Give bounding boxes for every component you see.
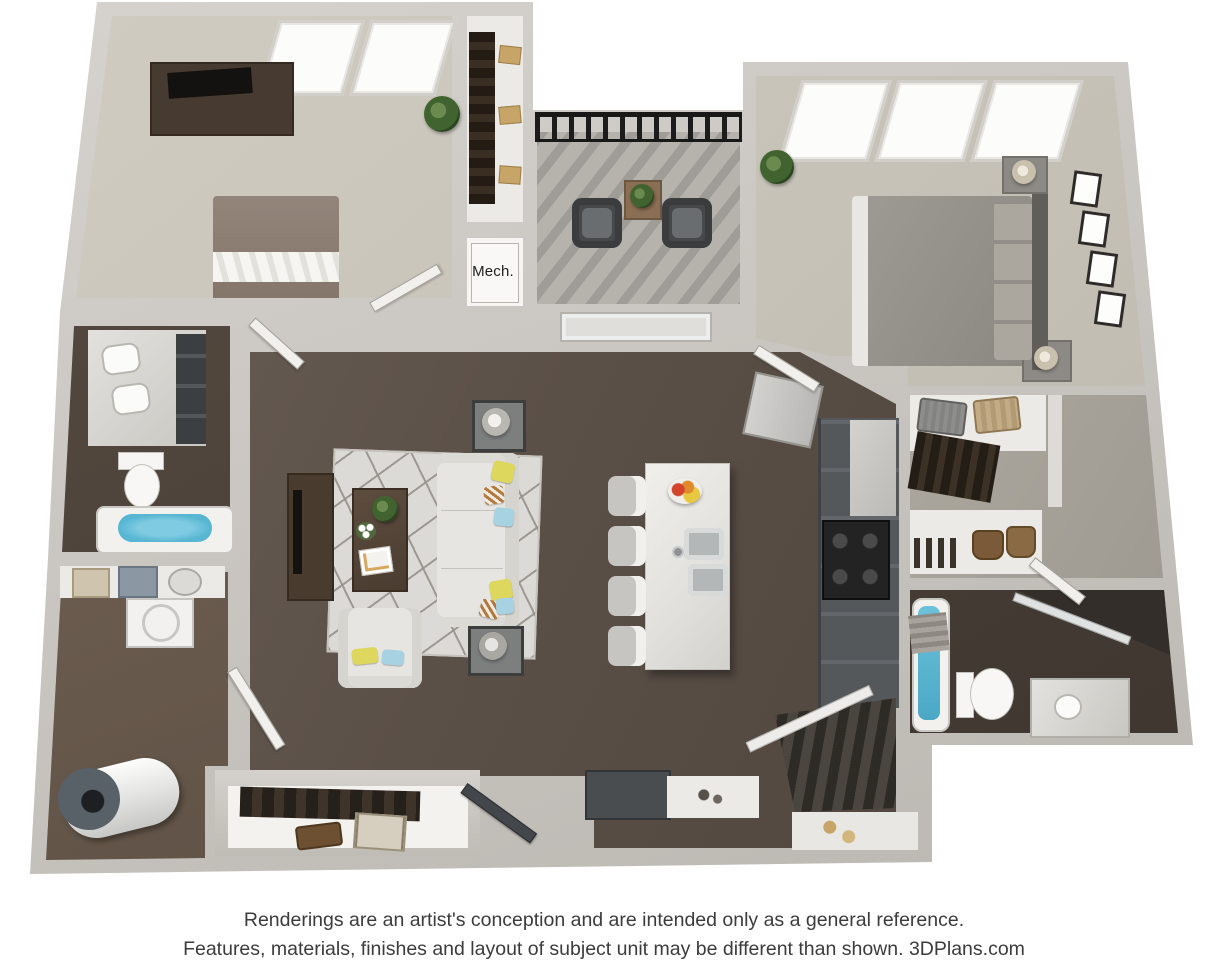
walkin-handbag-2 bbox=[1006, 526, 1036, 558]
bathroom-toilet-bowl bbox=[124, 464, 160, 508]
closet-hanging-clothes bbox=[469, 32, 495, 204]
master-vanity-sink bbox=[1054, 694, 1082, 720]
bar-stool-1 bbox=[608, 476, 646, 516]
master-bed-pillows bbox=[994, 202, 1032, 360]
entry-console bbox=[667, 776, 759, 818]
laundry-basket-wire bbox=[168, 568, 202, 596]
sofa-pillow-yellow-1 bbox=[490, 460, 516, 484]
island-faucet bbox=[672, 546, 684, 558]
laundry-basket-tan bbox=[72, 568, 110, 598]
balcony-table-plant bbox=[630, 184, 654, 208]
living-armchair bbox=[338, 608, 422, 688]
bedroom2-plant bbox=[424, 96, 460, 132]
bathroom-sink-1 bbox=[100, 342, 142, 377]
floorplan-rendering: Mech. bbox=[0, 0, 1208, 960]
laundry-washer-door bbox=[142, 604, 180, 642]
end-table-lamp-2 bbox=[479, 632, 507, 660]
bedroom2-bed bbox=[213, 196, 339, 298]
bar-stool-3 bbox=[608, 576, 646, 616]
coffee-table-plant bbox=[372, 496, 398, 522]
bedroom2-bed-blanket bbox=[213, 252, 339, 282]
mech-label: Mech. bbox=[463, 238, 523, 304]
living-sofa-seam-2 bbox=[441, 568, 503, 569]
island-sink-2 bbox=[688, 564, 728, 596]
balcony-chair-2-cushion bbox=[672, 208, 702, 238]
master-lamp-2 bbox=[1034, 346, 1058, 370]
disclaimer-line1: Renderings are an artist's conception an… bbox=[0, 906, 1208, 935]
armchair-pillow-yellow bbox=[351, 647, 379, 666]
disclaimer-line2: Features, materials, finishes and layout… bbox=[0, 935, 1208, 960]
coffee-table-magazine bbox=[358, 546, 393, 576]
kitchen-counter-marble bbox=[850, 420, 896, 516]
sofa-pillow-blue-1 bbox=[493, 507, 515, 527]
master-plant bbox=[760, 150, 794, 184]
sofa-pillow-stripe-1 bbox=[483, 485, 505, 506]
master-bed-sheet bbox=[852, 196, 868, 366]
master-headboard bbox=[1032, 194, 1048, 370]
master-tub-towel bbox=[908, 612, 950, 654]
closet-box-3 bbox=[498, 165, 521, 184]
walkin-suitcase-gray bbox=[916, 397, 968, 437]
master-wall-art-2 bbox=[1078, 210, 1110, 248]
armchair-pillow-blue bbox=[381, 649, 404, 666]
sofa-pillow-blue-2 bbox=[495, 597, 514, 614]
master-toilet-bowl bbox=[970, 668, 1014, 720]
bathroom-sink-2 bbox=[110, 382, 152, 417]
island-sink-1 bbox=[684, 528, 724, 560]
bathroom-vanity-cabinet bbox=[176, 334, 206, 444]
walkin-suitcase-tan bbox=[972, 396, 1021, 435]
master-lamp-1 bbox=[1012, 160, 1036, 184]
walkin-partition-wall bbox=[1048, 395, 1062, 507]
entry-suitcase bbox=[353, 812, 407, 852]
bathroom-tub-water bbox=[118, 514, 212, 542]
balcony-sliding-door bbox=[560, 312, 712, 342]
master-wall-art-3 bbox=[1086, 250, 1118, 288]
island-fruit-bowl bbox=[668, 478, 702, 504]
kitchen-range bbox=[822, 520, 890, 600]
entry-landing bbox=[792, 812, 918, 850]
laundry-basket-blue bbox=[118, 566, 158, 598]
master-wall-art-1 bbox=[1070, 170, 1102, 208]
end-table-lamp-1 bbox=[482, 408, 510, 436]
closet-box-2 bbox=[498, 105, 521, 125]
bar-stool-4 bbox=[608, 626, 646, 666]
closet-box-1 bbox=[498, 45, 522, 65]
walkin-shoes bbox=[914, 538, 958, 568]
disclaimer: Renderings are an artist's conception an… bbox=[0, 906, 1208, 960]
master-wall-art-4 bbox=[1094, 290, 1126, 328]
living-tv bbox=[293, 490, 302, 574]
bar-stool-2 bbox=[608, 526, 646, 566]
balcony-railing bbox=[535, 112, 742, 142]
coffee-table-flowers bbox=[356, 522, 376, 540]
walkin-handbag-1 bbox=[972, 530, 1004, 560]
entry-bench bbox=[585, 770, 671, 820]
balcony-chair-1-cushion bbox=[582, 208, 612, 238]
